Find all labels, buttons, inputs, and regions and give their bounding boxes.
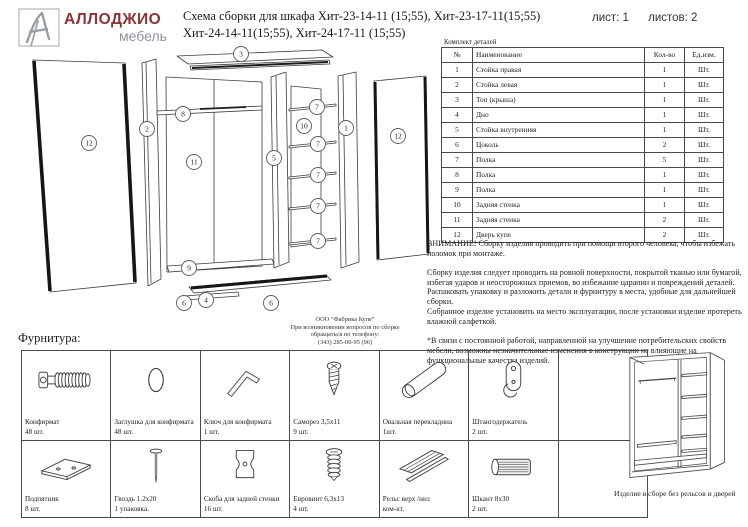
screw-icon: [305, 358, 363, 402]
svg-text:7: 7: [316, 202, 320, 211]
hardware-qty: 2 шт.: [472, 428, 555, 437]
hardware-cell-rod-holder: Штангодержатель2 шт.: [469, 351, 558, 441]
part-number: 7: [442, 153, 473, 168]
hardware-cell-oval-bar: Овальная перекладина1шт.: [380, 351, 469, 441]
hardware-name: Подпятник: [25, 495, 108, 504]
foot-pad-icon: [37, 445, 95, 489]
assembled-wardrobe-drawing: [616, 346, 744, 488]
part-name: Задняя стенка: [473, 213, 645, 228]
part-qty: 5: [645, 153, 685, 168]
hardware-label: Овальная перекладина1шт.: [383, 418, 466, 437]
table-row: 4Дно1Шт.: [442, 108, 724, 123]
hardware-qty: ком-кт.: [383, 505, 466, 514]
note-paragraph: Распаковать упаковку и разложить детали …: [427, 287, 746, 307]
oval-bar-icon: [395, 358, 453, 402]
hardware-name: Шкант 8х30: [472, 495, 555, 504]
part-unit: Шт.: [685, 108, 724, 123]
svg-text:11: 11: [190, 158, 197, 167]
hardware-name: Ключ для конфирмата: [204, 418, 287, 427]
hardware-cell-euro-screw: Евровинт 6,3х134 шт.: [290, 441, 379, 518]
hardware-name: Заглушка для конфирмата: [114, 418, 197, 427]
parts-list-section: Комплект деталей № Наименование Кол-во Е…: [441, 39, 709, 243]
hardware-name: Овальная перекладина: [383, 418, 466, 427]
part-name: Цоколь: [473, 138, 645, 153]
col-name: Наименование: [473, 48, 645, 63]
part-number: 10: [442, 198, 473, 213]
part-name: Дно: [473, 108, 645, 123]
factory-phone: (343) 285-00-95 (96): [262, 339, 428, 347]
part-number: 3: [442, 93, 473, 108]
nail-icon: [127, 445, 185, 489]
svg-text:12: 12: [85, 139, 93, 148]
rod-holder-icon: [484, 358, 542, 402]
part-unit: Шт.: [685, 63, 724, 78]
hardware-cell-bracket: Скоба для задней стенки16 шт.: [201, 441, 290, 518]
table-row: 2Стойка левая1Шт.: [442, 78, 724, 93]
hardware-cell-dowel: Шкант 8х302 шт.: [469, 441, 558, 518]
hardware-qty: 16 шт.: [204, 505, 287, 514]
assembled-caption: Изделие в сборе без рельсов и дверей: [614, 489, 736, 498]
svg-text:7: 7: [316, 171, 320, 180]
part-qty: 1: [645, 93, 685, 108]
svg-text:7: 7: [316, 140, 320, 149]
hardware-qty: 9 шт.: [293, 428, 376, 437]
hardware-qty: 48 шт.: [114, 428, 197, 437]
hardware-cell-nail: Гвоздь 1.2х201 упаковка.: [111, 441, 200, 518]
part-number: 1: [442, 63, 473, 78]
hardware-name: Штангодержатель: [472, 418, 555, 427]
hardware-qty: 48 шт.: [25, 428, 108, 437]
hardware-cell-confirmat: Конфирмат48 шт.: [22, 351, 111, 441]
part-qty: 1: [645, 123, 685, 138]
hardware-name: Гвоздь 1.2х20: [114, 495, 197, 504]
factory-contact: ООО "Фабрика Купе" При возникновении воп…: [262, 316, 428, 347]
hardware-cell-rail: Рельс верх /низком-кт.: [380, 441, 469, 518]
part-name: Задняя стенка: [473, 198, 645, 213]
parts-table: № Наименование Кол-во Ед.изм. 1Стойка пр…: [441, 47, 724, 243]
plug-icon: [127, 358, 185, 402]
hardware-label: Рельс верх /низком-кт.: [383, 495, 466, 514]
part-unit: Шт.: [685, 153, 724, 168]
hardware-name: Рельс верх /низ: [383, 495, 466, 504]
part-qty: 2: [645, 213, 685, 228]
svg-text:7: 7: [316, 237, 320, 246]
col-qty: Кол-во: [645, 48, 685, 63]
col-number: №: [442, 48, 473, 63]
parts-table-caption: Комплект деталей: [444, 39, 709, 46]
svg-text:2: 2: [145, 125, 149, 134]
part-number: 4: [442, 108, 473, 123]
part-name: Стойка правая: [473, 63, 645, 78]
hardware-label: Саморез 3,5х119 шт.: [293, 418, 376, 437]
svg-text:9: 9: [187, 264, 191, 273]
table-row: 8Полка1Шт.: [442, 168, 724, 183]
table-header-row: № Наименование Кол-во Ед.изм.: [442, 48, 724, 63]
part-name: Топ (крыша): [473, 93, 645, 108]
part-unit: Шт.: [685, 78, 724, 93]
hardware-label: Заглушка для конфирмата48 шт.: [114, 418, 197, 437]
hardware-label: Штангодержатель2 шт.: [472, 418, 555, 437]
svg-text:3: 3: [239, 50, 243, 59]
hardware-cell-screw: Саморез 3,5х119 шт.: [290, 351, 379, 441]
part-qty: 1: [645, 63, 685, 78]
sheet-info: лист: 1 листов: 2: [592, 12, 713, 24]
part-name: Стойка внутренняя: [473, 123, 645, 138]
svg-text:7: 7: [315, 103, 319, 112]
part-unit: Шт.: [685, 198, 724, 213]
sheet-number: лист: 1: [592, 12, 629, 24]
svg-text:6: 6: [269, 299, 273, 308]
factory-note1: При возникновении вопросов по сборке: [262, 324, 428, 332]
hardware-section-title: Фурнитура:: [18, 331, 81, 346]
rail-icon: [395, 445, 453, 489]
factory-name: ООО "Фабрика Купе": [262, 316, 428, 324]
hardware-cell-plug: Заглушка для конфирмата48 шт.: [111, 351, 200, 441]
hardware-qty: 4 шт.: [293, 505, 376, 514]
part-name: Стойка левая: [473, 78, 645, 93]
factory-note2: обращаться по телефону:: [262, 331, 428, 339]
bracket-icon: [216, 445, 274, 489]
svg-text:4: 4: [204, 296, 208, 305]
table-row: 10Задняя стенка1Шт.: [442, 198, 724, 213]
hardware-label: Гвоздь 1.2х201 упаковка.: [114, 495, 197, 514]
hardware-label: Скоба для задней стенки16 шт.: [204, 495, 287, 514]
svg-text:1: 1: [344, 124, 348, 133]
part-number: 2: [442, 78, 473, 93]
part-number: 6: [442, 138, 473, 153]
svg-text:5: 5: [272, 154, 276, 163]
part-unit: Шт.: [685, 123, 724, 138]
part-unit: Шт.: [685, 138, 724, 153]
svg-text:10: 10: [300, 122, 308, 131]
hex-key-icon: [216, 358, 274, 402]
hardware-grid: Конфирмат48 шт.Заглушка для конфирмата48…: [21, 350, 648, 518]
hardware-qty: 8 шт.: [25, 505, 108, 514]
hardware-qty: 2 шт.: [472, 505, 555, 514]
hardware-name: Евровинт 6,3х13: [293, 495, 376, 504]
table-row: 11Задняя стенка2Шт.: [442, 213, 724, 228]
part-name: Полка: [473, 168, 645, 183]
part-qty: 1: [645, 108, 685, 123]
note-paragraph: Собранное изделие установить на место эк…: [427, 307, 746, 327]
table-row: 6Цоколь2Шт.: [442, 138, 724, 153]
note-paragraph: Сборку изделия следует проводить на ровн…: [427, 268, 746, 288]
hardware-label: Ключ для конфирмата1 шт.: [204, 418, 287, 437]
hardware-qty: 1 шт.: [204, 428, 287, 437]
assembly-instruction-sheet: АЛЛОДЖИО мебель Схема сборки для шкафа Х…: [0, 0, 748, 527]
hardware-cell-foot-pad: Подпятник8 шт.: [22, 441, 111, 518]
part-unit: Шт.: [685, 168, 724, 183]
col-unit: Ед.изм.: [685, 48, 724, 63]
table-row: 3Топ (крыша)1Шт.: [442, 93, 724, 108]
hardware-label: Конфирмат48 шт.: [25, 418, 108, 437]
hardware-name: Скоба для задней стенки: [204, 495, 287, 504]
hardware-qty: 1 упаковка.: [114, 505, 197, 514]
part-number: 11: [442, 213, 473, 228]
part-unit: Шт.: [685, 93, 724, 108]
table-row: 9Полка1Шт.: [442, 183, 724, 198]
table-row: 5Стойка внутренняя1Шт.: [442, 123, 724, 138]
table-row: 1Стойка правая1Шт.: [442, 63, 724, 78]
svg-text:8: 8: [181, 110, 185, 119]
part-number: 5: [442, 123, 473, 138]
hardware-qty: 1шт.: [383, 428, 466, 437]
note-paragraph: ВНИМАНИЕ! Сборку изделия проводить при п…: [427, 239, 746, 259]
exploded-diagram: 3122811710112577779646: [0, 0, 440, 330]
hardware-label: Евровинт 6,3х134 шт.: [293, 495, 376, 514]
part-number: 8: [442, 168, 473, 183]
hardware-name: Конфирмат: [25, 418, 108, 427]
sheets-total: листов: 2: [648, 12, 697, 24]
hardware-label: Подпятник8 шт.: [25, 495, 108, 514]
table-row: 7Полка5Шт.: [442, 153, 724, 168]
part-name: Полка: [473, 153, 645, 168]
hardware-label: Шкант 8х302 шт.: [472, 495, 555, 514]
confirmat-icon: [37, 358, 95, 402]
part-unit: Шт.: [685, 213, 724, 228]
part-number: 9: [442, 183, 473, 198]
hardware-name: Саморез 3,5х11: [293, 418, 376, 427]
part-qty: 1: [645, 183, 685, 198]
dowel-icon: [484, 445, 542, 489]
part-qty: 2: [645, 138, 685, 153]
svg-text:6: 6: [182, 299, 186, 308]
part-qty: 1: [645, 168, 685, 183]
hardware-cell-hex-key: Ключ для конфирмата1 шт.: [201, 351, 290, 441]
part-unit: Шт.: [685, 183, 724, 198]
part-qty: 1: [645, 198, 685, 213]
part-qty: 1: [645, 78, 685, 93]
part-name: Полка: [473, 183, 645, 198]
svg-text:12: 12: [394, 132, 402, 141]
euro-screw-icon: [305, 445, 363, 489]
